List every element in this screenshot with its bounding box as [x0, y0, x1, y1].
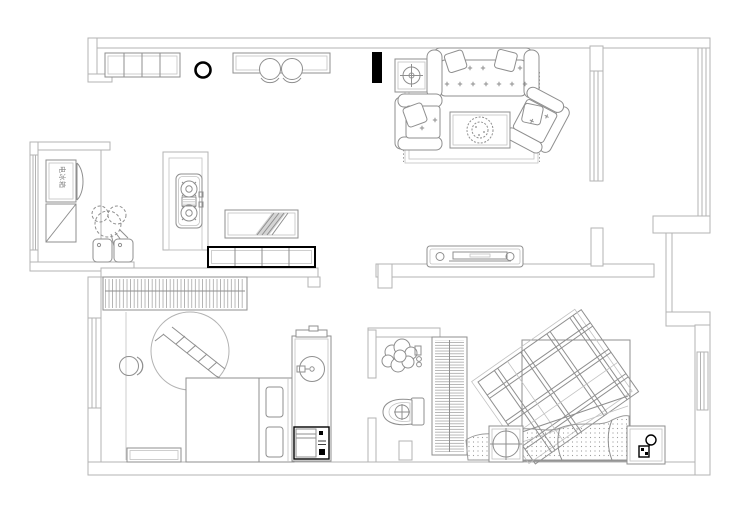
window: [698, 48, 710, 216]
armchair: [395, 94, 442, 150]
fridge-cabinet: 电冰箱: [46, 160, 83, 202]
pendant-lamp-icon: [196, 63, 211, 78]
toilet-icon: [383, 398, 424, 425]
wall-cabinet: [105, 53, 180, 77]
shower-icon: [382, 339, 421, 372]
coffee-table: [450, 112, 510, 148]
nightstand: [627, 426, 665, 464]
striped-wardrobe: [432, 337, 467, 455]
shoe-cabinet: [208, 247, 315, 267]
stool: [120, 357, 143, 376]
side-table-lamp-icon: [395, 59, 428, 92]
floor-plan: 电冰箱: [0, 0, 740, 510]
wardrobe: [103, 277, 247, 310]
window: [88, 318, 101, 408]
floor-plan-drawing: 电冰箱: [0, 0, 740, 510]
window: [697, 352, 708, 410]
bench: [127, 448, 181, 462]
fridge-label: 电冰箱: [58, 166, 67, 189]
window: [590, 71, 603, 181]
column: [372, 52, 382, 83]
washbasin-column: [292, 326, 331, 461]
tv-cabinet: [427, 246, 523, 267]
appliance-cabinet: [46, 204, 76, 242]
window: [30, 155, 38, 250]
single-bed: [186, 378, 294, 462]
washing-machine-icon: [294, 427, 329, 459]
nightstand: [489, 426, 523, 462]
sofa: [427, 48, 539, 98]
art-panel: [225, 210, 298, 238]
gas-stove-icon: [176, 174, 203, 228]
